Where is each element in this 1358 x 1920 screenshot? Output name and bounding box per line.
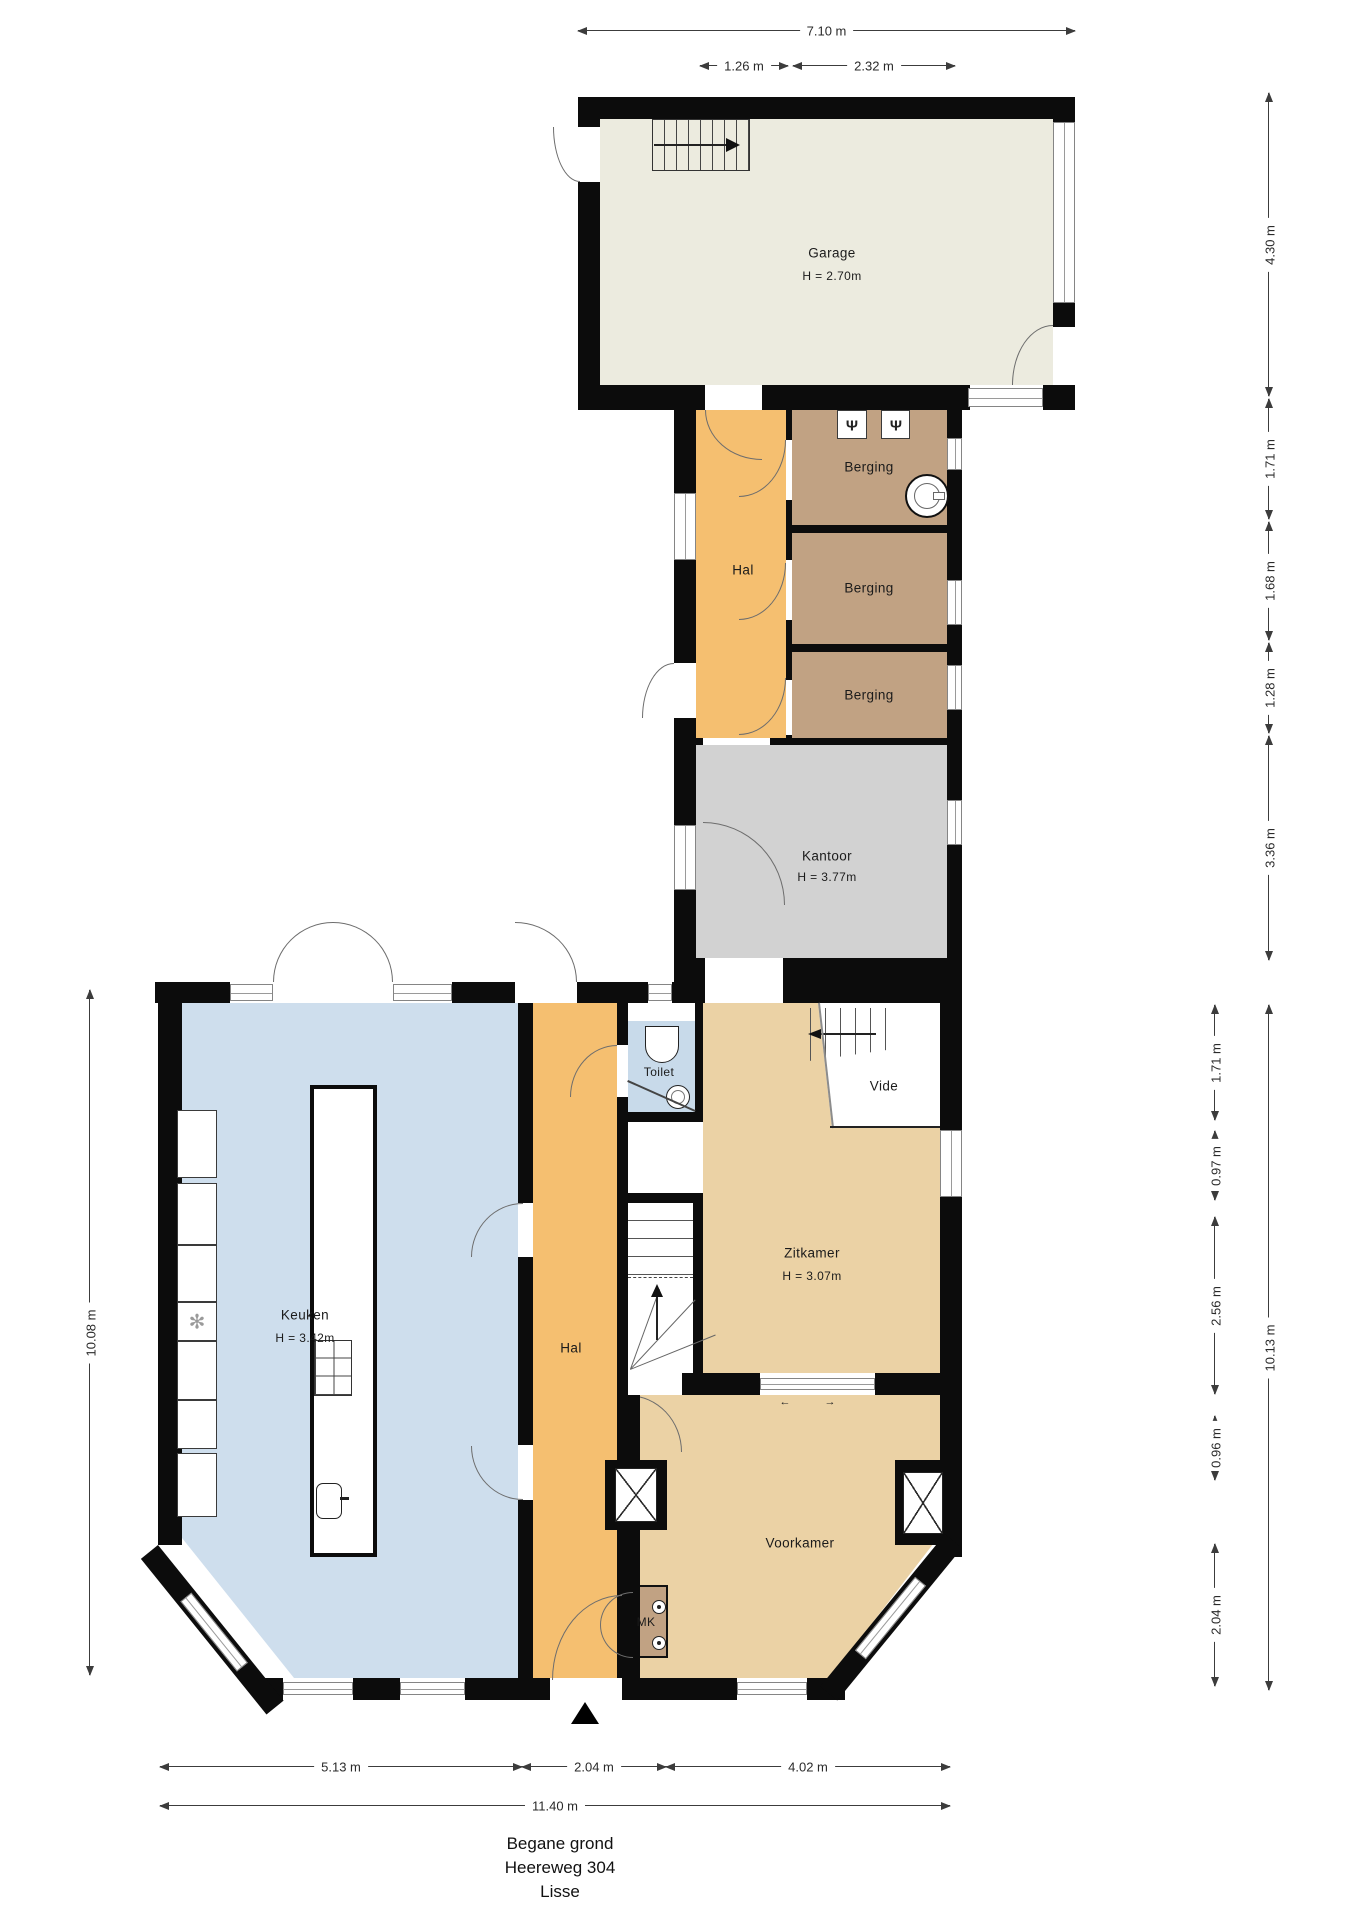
wall [675,385,705,410]
wall [786,738,947,745]
wall [518,1003,533,1203]
wall [770,738,786,745]
wall [696,738,703,745]
wall [155,982,230,1003]
zitkamer-sliding-window [760,1378,875,1390]
wall [617,1193,703,1203]
hal-top-door-arc [515,922,577,982]
zitkamer-height-label: H = 3.07m [782,1269,841,1283]
keuken-window [400,1682,465,1695]
dim-right-lower-total: 10.13 m [1268,1005,1269,1690]
dim-right-b2: 1.68 m [1268,522,1269,640]
chimney-flue [903,1472,943,1534]
berging-window [947,580,962,625]
slide-arrow-left-icon: ← [780,1396,791,1408]
dim-right-voorkamer: 2.04 m [1214,1544,1215,1686]
dim-top-berging: 2.32 m [793,65,955,66]
mk-label: MK [637,1615,656,1629]
wall [792,525,947,533]
wall [578,97,1075,119]
wall [792,644,947,652]
coat-hook-icon: Ψ [890,418,902,435]
wall [617,1003,628,1045]
city-line: Lisse [540,1882,580,1902]
kantoor-window [674,825,696,890]
wall [947,710,962,800]
zitkamer-window [940,1130,962,1197]
wall [578,119,600,127]
zitkamer-label: Zitkamer [784,1246,840,1261]
dim-right-kantoor: 3.36 m [1268,736,1269,960]
toilet-bowl-icon [645,1026,679,1063]
garage-label: Garage [808,246,855,261]
wall [674,560,696,663]
meter-icon-dot [657,1641,661,1645]
kantoor-height-label: H = 3.77m [797,870,856,884]
island-sink-icon [316,1483,342,1519]
meter-icon-dot [657,1605,661,1609]
wall [672,982,705,1003]
hal-low-label: Hal [560,1341,581,1356]
cabinet [177,1400,217,1449]
french-door-left-arc [273,922,333,982]
dim-right-window1: 0.97 m [1214,1131,1215,1200]
toilet-label: Toilet [644,1065,674,1079]
garage-stairs-arrow [654,144,726,146]
wall [578,182,600,385]
wall [577,982,648,1003]
voorkamer-window [737,1682,807,1695]
entrance-arrow-icon [571,1702,599,1724]
dim-right-b3: 1.28 m [1268,643,1269,733]
cabinet [177,1245,217,1302]
wall [783,982,962,1003]
dim-right-window2: 0.96 m [1214,1416,1215,1480]
wall [940,1003,962,1130]
wall [947,625,962,665]
wall [622,1678,737,1700]
address-line: Heereweg 304 [505,1858,616,1878]
kantoor-label: Kantoor [802,849,852,864]
dim-right-zitkamer: 2.56 m [1214,1217,1215,1394]
vide-stairs-arrowhead-icon [808,1029,821,1039]
dim-bottom-total: 11.40 m [160,1805,950,1806]
wall [465,1678,550,1700]
vide-label: Vide [870,1079,898,1094]
dim-top-total: 7.10 m [578,30,1075,31]
toilet-window [648,984,672,1001]
wall [353,1678,400,1700]
staircase-treads [628,1203,693,1277]
dim-bottom-voorkamer: 4.02 m [666,1766,950,1767]
boiler-icon-nub [933,492,945,500]
wall [1053,303,1075,327]
staircase-winder-line [630,1300,696,1370]
slide-arrow-right-icon: → [825,1396,836,1408]
vide-bottom-edge [830,1126,940,1128]
berging3-label: Berging [844,688,893,703]
wall [762,385,962,410]
garage-window [1053,122,1075,303]
toilet-niche [628,1003,695,1021]
dim-right-vide: 1.71 m [1214,1005,1215,1120]
appliance-box [177,1110,217,1178]
berging2-label: Berging [844,581,893,596]
dim-top-hal: 1.26 m [700,65,788,66]
keuken-window [283,1682,353,1695]
coat-hook-icon: Ψ [846,418,858,435]
dim-bottom-hal: 2.04 m [522,1766,666,1767]
berging-window [947,665,962,710]
keuken-label: Keuken [281,1308,329,1323]
wall [870,958,962,982]
wall [628,1112,703,1122]
cabinet [177,1341,217,1400]
dim-left-total: 10.08 m [89,990,90,1675]
vide-stairs-arrow [820,1033,876,1035]
berging-window [947,438,962,470]
chimney-flue [615,1468,657,1522]
wall [940,1395,962,1463]
dim-bottom-keuken: 5.13 m [160,1766,522,1767]
keuken-height-label: H = 3.42m [275,1331,334,1345]
keuken-window [230,984,273,1001]
staircase-arrowhead-icon [651,1284,663,1297]
hal-window [674,493,696,560]
french-door-right-arc [333,922,393,982]
garage-height-label: H = 2.70m [802,269,861,283]
floorplan-begane-grond: Ψ Ψ ← → [0,0,1358,1920]
wall [786,410,792,440]
wall [947,845,962,958]
garage-stairs-arrowhead-icon [726,138,740,152]
cooktop-icon [314,1340,352,1396]
wall [518,1257,533,1445]
wall [947,470,962,580]
wall [1043,385,1075,410]
dim-right-garage: 4.30 m [1268,93,1269,396]
wall [674,410,696,493]
wall [578,385,675,410]
wall [674,718,696,825]
kantoor-window [947,800,962,845]
corridor-floor [628,1122,693,1193]
floor-title: Begane grond [507,1834,614,1854]
wall [617,1373,628,1395]
keuken-window [393,984,452,1001]
wall [674,958,705,982]
extractor-fan-icon: ✻ [189,1310,206,1335]
garage-left-door-arc [553,127,580,182]
wall [875,1373,962,1395]
cabinet [177,1183,217,1245]
island-sink-tap [340,1497,349,1500]
staircase-arrow [656,1296,658,1340]
staircase-dash-line [628,1277,693,1278]
wall [947,410,962,438]
wall [452,982,515,1003]
garage-window [968,388,1043,407]
wall [682,1373,760,1395]
hal-mid-label: Hal [732,563,753,578]
voorkamer-label: Voorkamer [766,1536,835,1551]
wall [693,1203,703,1373]
appliance-box [177,1453,217,1517]
wall [940,1197,962,1373]
wall [695,1003,703,1122]
wall [518,1500,533,1678]
dim-right-b1: 1.71 m [1268,399,1269,519]
berging1-label: Berging [844,460,893,475]
hal-exterior-door-arc [642,663,674,718]
